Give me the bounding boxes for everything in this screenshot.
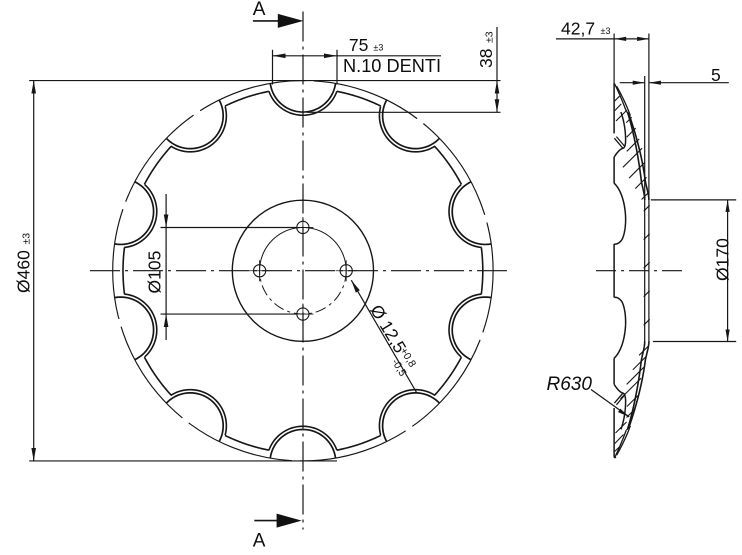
svg-text:±3: ±3: [484, 31, 496, 43]
svg-text:A: A: [253, 530, 266, 550]
svg-text:±3: ±3: [373, 43, 383, 53]
svg-text:N.10 DENTI: N.10 DENTI: [343, 56, 441, 76]
svg-text:±3: ±3: [601, 26, 611, 36]
svg-text:±3: ±3: [21, 233, 33, 245]
svg-text:Ø105: Ø105: [145, 251, 165, 294]
svg-text:42,7: 42,7: [561, 18, 595, 38]
svg-text:A: A: [253, 0, 266, 20]
svg-text:Ø460: Ø460: [14, 250, 34, 293]
svg-text:R630: R630: [547, 374, 593, 395]
svg-text:Ø170: Ø170: [713, 238, 733, 281]
svg-text:38: 38: [476, 49, 496, 68]
svg-text:5: 5: [711, 65, 721, 85]
svg-text:75: 75: [349, 35, 368, 55]
